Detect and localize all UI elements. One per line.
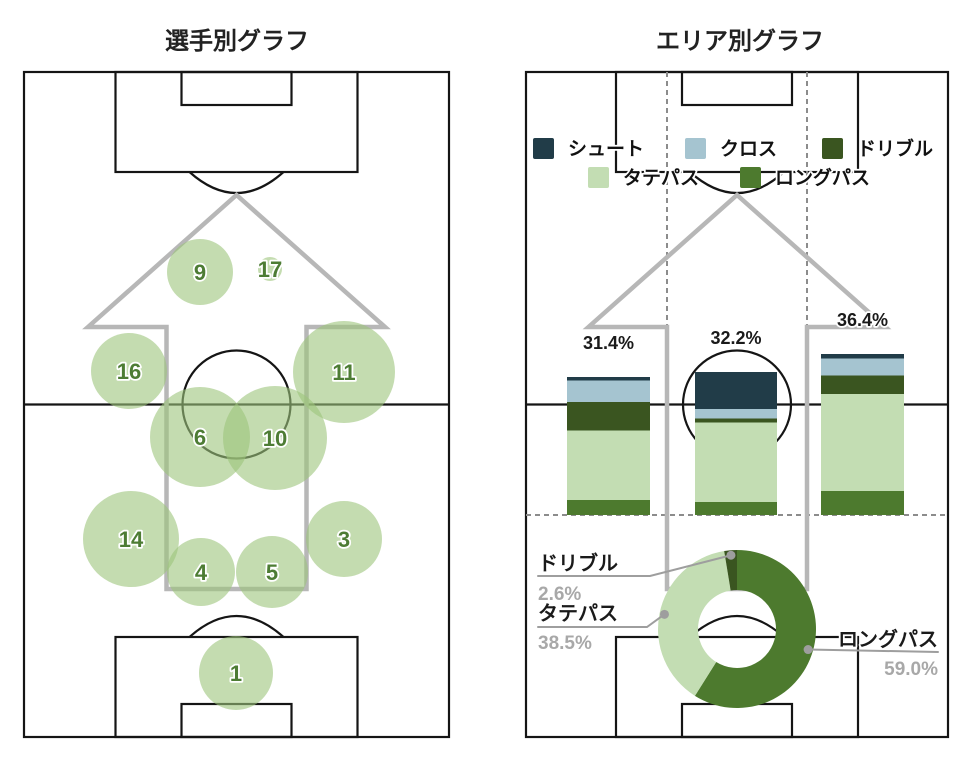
legend-label-tate: タテパス [623,167,699,189]
zone-bar-3 [821,354,904,515]
player-number-6: 6 [194,425,206,450]
bar-segment-shoot [567,377,650,380]
player-number-11: 11 [332,360,355,385]
legend-swatch-shoot [533,138,554,159]
penalty-arc-top [690,172,784,193]
bar-segment-tate [567,430,650,500]
zone-percentage-label: 32.2% [710,328,761,348]
player-number-9: 9 [194,260,206,285]
legend-swatch-dribble [822,138,843,159]
legend-swatch-cross [685,138,706,159]
penalty-area-top [116,72,358,172]
goal-area-top [182,72,292,105]
player-number-4: 4 [195,560,208,585]
legend-swatch-tate [588,167,609,188]
pitch-charts-svg: 9171611610143451シュートクロスドリブルタテパスロングパス31.4… [0,0,970,760]
player-number-1: 1 [230,661,242,686]
donut-label-tate: タテパス [538,602,618,625]
legend-label-cross: クロス [720,138,777,160]
legend-label-long: ロングパス [775,166,870,189]
legend-label-shoot: シュート [568,139,644,160]
goal-area-bottom [682,704,792,737]
player-number-16: 16 [117,359,141,384]
legend: シュートクロスドリブルタテパスロングパス [533,137,933,189]
bar-segment-shoot [821,354,904,359]
callout-dot-dribble [726,551,735,560]
bar-segment-cross [567,380,650,402]
callout-dot-tate [660,610,669,619]
left-chart-title: 選手別グラフ [165,21,309,56]
bar-segment-dribble [567,402,650,430]
penalty-arc-bottom [190,616,284,637]
bar-segment-tate [821,394,904,491]
goal-area-top [682,72,792,105]
donut-percentage-long: 59.0% [884,659,938,680]
callout-dot-long [804,645,813,654]
donut-chart [658,550,816,708]
player-number-5: 5 [266,560,278,585]
bar-segment-long [567,500,650,515]
zone-bar-2 [695,372,777,515]
zone-percentage-label: 31.4% [583,333,634,353]
right-chart-title: エリア別グラフ [656,21,824,56]
donut-percentage-tate: 38.5% [538,633,592,654]
bar-segment-long [695,502,777,515]
donut-label-long: ロングパス [838,627,938,651]
donut-percentage-dribble: 2.6% [538,584,581,605]
bar-segment-shoot [695,372,777,409]
legend-swatch-long [740,167,761,188]
player-number-14: 14 [119,527,144,552]
donut-label-dribble: ドリブル [538,551,618,575]
legend-label-dribble: ドリブル [857,137,933,160]
penalty-arc-top [190,172,284,193]
player-number-10: 10 [263,426,287,451]
player-number-3: 3 [338,527,350,552]
player-number-17: 17 [258,257,282,282]
bar-segment-cross [821,359,904,376]
bar-segment-dribble [821,376,904,394]
pitch-analytics-canvas: 選手別グラフ エリア別グラフ 9171611610143451シュートクロスドリ… [0,0,970,760]
zone-bar-1 [567,377,650,515]
bar-segment-dribble [695,418,777,422]
bar-segment-tate [695,422,777,502]
zone-percentage-label: 36.4% [837,310,888,330]
bar-segment-long [821,491,904,515]
bar-segment-cross [695,409,777,418]
penalty-arc-bottom [690,616,784,637]
